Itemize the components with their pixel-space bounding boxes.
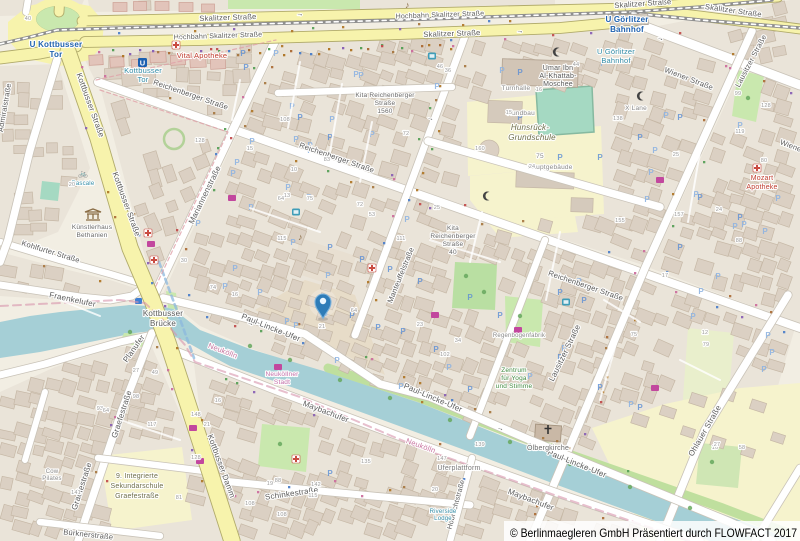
- svg-text:9. Integrierte: 9. Integrierte: [116, 473, 158, 480]
- svg-text:U Görlitzer: U Görlitzer: [597, 47, 635, 56]
- svg-text:117: 117: [147, 422, 156, 428]
- svg-text:U: U: [140, 59, 145, 68]
- svg-text:75: 75: [631, 332, 638, 338]
- svg-text:P: P: [297, 113, 303, 122]
- svg-text:P: P: [690, 312, 696, 321]
- svg-text:P: P: [243, 63, 249, 72]
- svg-text:P: P: [677, 113, 683, 122]
- svg-text:P: P: [769, 348, 775, 357]
- svg-text:Bethanien: Bethanien: [76, 232, 107, 239]
- svg-text:83: 83: [324, 157, 331, 163]
- svg-text:Hunsrück-: Hunsrück-: [511, 123, 549, 132]
- svg-text:Vital Apotheke: Vital Apotheke: [177, 51, 228, 60]
- svg-text:155: 155: [615, 218, 625, 224]
- svg-text:115: 115: [308, 493, 317, 499]
- svg-text:Neuköllner: Neuköllner: [265, 371, 299, 378]
- svg-text:P: P: [325, 271, 331, 280]
- svg-text:157: 157: [674, 212, 684, 218]
- svg-text:P: P: [467, 385, 473, 394]
- svg-text:P: P: [765, 331, 771, 340]
- svg-text:16: 16: [536, 87, 543, 93]
- svg-text:P: P: [400, 327, 406, 336]
- svg-text:119: 119: [735, 129, 744, 135]
- svg-text:Stadt: Stadt: [274, 379, 290, 386]
- svg-text:128: 128: [761, 103, 771, 109]
- svg-text:U Görlitzer: U Görlitzer: [605, 15, 648, 24]
- svg-text:27: 27: [133, 368, 140, 374]
- svg-text:72: 72: [357, 202, 364, 208]
- svg-text:88: 88: [275, 478, 282, 484]
- svg-text:© Berlinmaegleren GmbH Präsent: © Berlinmaegleren GmbH Präsentiert durch…: [510, 526, 797, 540]
- svg-text:P: P: [285, 183, 291, 192]
- svg-text:20: 20: [69, 182, 76, 188]
- svg-text:Kita: Kita: [447, 225, 459, 232]
- svg-text:98: 98: [133, 394, 140, 400]
- svg-text:Riverside: Riverside: [430, 509, 457, 515]
- svg-text:160: 160: [475, 146, 485, 152]
- svg-text:P: P: [497, 311, 503, 320]
- svg-text:P: P: [293, 321, 299, 330]
- svg-text:→: →: [176, 35, 183, 42]
- svg-text:102: 102: [440, 352, 450, 358]
- svg-text:17: 17: [662, 273, 669, 279]
- svg-text:P: P: [663, 111, 669, 120]
- svg-text:25: 25: [673, 152, 680, 158]
- svg-text:128: 128: [195, 138, 205, 144]
- svg-text:Künstlerhaus: Künstlerhaus: [72, 224, 113, 231]
- svg-text:🚲: 🚲: [78, 169, 88, 178]
- svg-text:für Yoga: für Yoga: [501, 375, 527, 382]
- svg-text:P: P: [249, 137, 255, 146]
- svg-text:Brücke: Brücke: [150, 319, 176, 328]
- svg-text:Straße: Straße: [443, 241, 464, 248]
- svg-text:Graefestraße: Graefestraße: [115, 493, 159, 500]
- svg-text:Kottbusser: Kottbusser: [143, 309, 183, 318]
- svg-text:P: P: [467, 293, 473, 302]
- svg-text:P: P: [557, 153, 563, 162]
- svg-text:Grundschule: Grundschule: [508, 133, 556, 142]
- svg-text:Lodge: Lodge: [434, 516, 452, 522]
- svg-text:Zentrum: Zentrum: [501, 367, 527, 374]
- svg-text:P: P: [637, 403, 643, 412]
- svg-text:P: P: [284, 317, 290, 326]
- svg-text:Kita Reichenberger: Kita Reichenberger: [355, 92, 415, 99]
- svg-text:Pilates: Pilates: [42, 476, 61, 482]
- svg-text:79: 79: [703, 342, 710, 348]
- svg-text:138: 138: [613, 116, 623, 122]
- svg-text:16: 16: [232, 292, 239, 298]
- svg-text:P: P: [359, 255, 365, 264]
- svg-text:Turnhalle: Turnhalle: [502, 85, 531, 92]
- svg-text:Ölbergkirche: Ölbergkirche: [527, 444, 569, 452]
- svg-text:81: 81: [176, 495, 183, 501]
- svg-text:P: P: [334, 356, 340, 365]
- svg-text:24: 24: [529, 164, 536, 170]
- svg-text:147: 147: [437, 456, 447, 462]
- svg-text:und Stimme: und Stimme: [496, 383, 533, 390]
- svg-text:20: 20: [432, 487, 439, 493]
- svg-text:P: P: [637, 133, 643, 142]
- svg-text:P: P: [715, 272, 721, 281]
- svg-text:88: 88: [736, 238, 743, 244]
- svg-text:P: P: [557, 288, 563, 297]
- svg-text:15: 15: [506, 110, 513, 116]
- svg-text:P: P: [230, 169, 236, 178]
- svg-text:19: 19: [267, 481, 274, 487]
- svg-text:P: P: [434, 82, 440, 91]
- svg-text:21: 21: [204, 422, 211, 428]
- svg-text:P: P: [648, 168, 654, 177]
- svg-text:80: 80: [761, 158, 768, 164]
- svg-text:141: 141: [71, 490, 81, 496]
- svg-text:P: P: [762, 227, 768, 236]
- svg-text:P: P: [677, 243, 683, 252]
- svg-text:30: 30: [181, 258, 188, 264]
- svg-text:♪: ♪: [298, 232, 303, 242]
- svg-text:12: 12: [702, 330, 709, 336]
- svg-text:108: 108: [277, 512, 287, 518]
- svg-text:111: 111: [397, 236, 406, 242]
- svg-text:142: 142: [311, 482, 321, 488]
- svg-text:16: 16: [215, 398, 222, 404]
- svg-text:64: 64: [351, 308, 358, 314]
- svg-text:P: P: [628, 400, 634, 409]
- svg-text:23: 23: [417, 322, 424, 328]
- svg-text:P: P: [232, 264, 238, 273]
- svg-text:Umar Ibn: Umar Ibn: [543, 65, 573, 72]
- svg-text:P: P: [644, 195, 650, 204]
- svg-text:P: P: [597, 153, 603, 162]
- svg-text:P: P: [375, 323, 381, 332]
- svg-text:115: 115: [277, 236, 286, 242]
- svg-text:P: P: [257, 288, 263, 297]
- svg-text:P: P: [517, 68, 523, 77]
- svg-text:148: 148: [191, 412, 201, 418]
- svg-text:139: 139: [475, 442, 485, 448]
- svg-text:1560: 1560: [377, 108, 392, 115]
- svg-text:Al-Khattab-: Al-Khattab-: [539, 73, 577, 80]
- svg-text:P: P: [240, 49, 246, 58]
- svg-text:P: P: [417, 277, 423, 286]
- svg-text:53: 53: [369, 212, 376, 218]
- svg-text:64: 64: [103, 408, 110, 414]
- svg-text:13: 13: [284, 193, 291, 199]
- svg-text:P: P: [581, 296, 587, 305]
- svg-text:→: →: [296, 11, 303, 18]
- svg-text:25: 25: [434, 205, 441, 211]
- svg-text:27: 27: [714, 442, 721, 448]
- svg-text:P: P: [527, 372, 533, 381]
- svg-text:75: 75: [307, 196, 314, 202]
- svg-text:Reichenberger: Reichenberger: [430, 233, 476, 240]
- svg-text:15: 15: [247, 146, 254, 152]
- svg-text:P: P: [327, 243, 333, 252]
- svg-text:108: 108: [245, 501, 255, 507]
- svg-text:74: 74: [210, 285, 217, 291]
- svg-text:Bahnhof: Bahnhof: [601, 56, 631, 65]
- svg-text:Tor: Tor: [137, 75, 148, 84]
- svg-text:P: P: [761, 365, 767, 374]
- svg-text:P: P: [273, 49, 279, 58]
- svg-text:P: P: [732, 222, 738, 231]
- svg-text:72: 72: [403, 131, 410, 137]
- svg-text:P: P: [387, 265, 393, 274]
- svg-text:P: P: [222, 282, 228, 291]
- svg-text:♪: ♪: [405, 0, 410, 10]
- svg-text:P: P: [293, 135, 299, 144]
- svg-text:P: P: [327, 469, 333, 478]
- svg-text:64: 64: [278, 196, 285, 202]
- svg-text:Regenbogenfabrik: Regenbogenfabrik: [493, 333, 546, 339]
- svg-text:34: 34: [455, 338, 462, 344]
- svg-text:Apotheke: Apotheke: [746, 184, 777, 191]
- svg-text:128: 128: [191, 455, 201, 461]
- svg-text:Moschee: Moschee: [543, 81, 573, 88]
- svg-text:10: 10: [291, 167, 298, 173]
- svg-text:X Lane: X Lane: [625, 105, 647, 112]
- svg-text:49: 49: [152, 370, 159, 376]
- svg-text:P: P: [433, 345, 439, 354]
- svg-text:→: →: [516, 28, 523, 35]
- svg-text:46: 46: [437, 64, 444, 70]
- svg-text:Tor: Tor: [50, 50, 63, 59]
- svg-text:Cow: Cow: [46, 469, 59, 475]
- svg-text:P: P: [499, 66, 505, 75]
- svg-text:58: 58: [739, 445, 746, 451]
- svg-text:40: 40: [449, 249, 457, 256]
- svg-text:Sekundarschule: Sekundarschule: [111, 483, 164, 490]
- svg-text:Bahnhof: Bahnhof: [610, 25, 644, 34]
- svg-text:Mozart: Mozart: [751, 175, 774, 182]
- svg-text:P: P: [446, 363, 452, 372]
- svg-text:40: 40: [25, 16, 32, 22]
- svg-text:P: P: [775, 194, 781, 203]
- svg-text:P: P: [698, 287, 704, 296]
- svg-text:P: P: [404, 215, 410, 224]
- svg-text:108: 108: [280, 117, 290, 123]
- svg-text:75: 75: [536, 153, 544, 160]
- svg-text:Straße: Straße: [375, 100, 396, 107]
- svg-text:99: 99: [735, 91, 742, 97]
- svg-text:P: P: [741, 220, 747, 229]
- svg-text:Uferplattform: Uferplattform: [437, 465, 480, 472]
- svg-text:135: 135: [361, 459, 371, 465]
- svg-text:P: P: [234, 158, 240, 167]
- svg-text:P: P: [358, 71, 364, 80]
- svg-text:P: P: [652, 146, 658, 155]
- svg-text:P: P: [290, 238, 296, 247]
- svg-text:36: 36: [445, 68, 452, 74]
- svg-text:U Kottbusser: U Kottbusser: [30, 40, 83, 49]
- svg-text:24: 24: [716, 207, 723, 213]
- svg-text:21: 21: [319, 324, 326, 330]
- svg-text:44: 44: [573, 62, 580, 68]
